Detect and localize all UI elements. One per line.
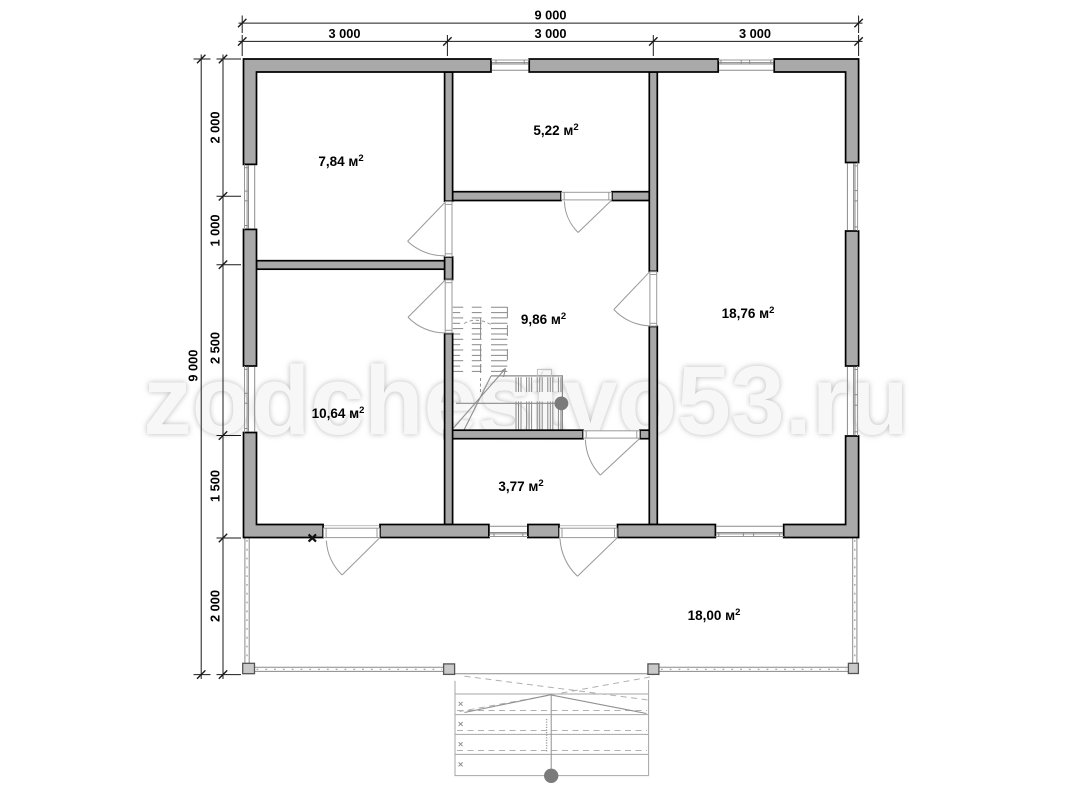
svg-text:5,22 м2: 5,22 м2 [533, 122, 578, 138]
svg-text:2 500: 2 500 [207, 332, 222, 364]
svg-text:9,86 м2: 9,86 м2 [521, 311, 566, 327]
svg-text:3 000: 3 000 [328, 26, 360, 41]
svg-text:3 000: 3 000 [739, 26, 771, 41]
svg-text:2 000: 2 000 [207, 590, 222, 622]
svg-text:2 000: 2 000 [207, 111, 222, 143]
svg-text:10,64 м2: 10,64 м2 [312, 405, 365, 421]
svg-text:9 000: 9 000 [186, 350, 201, 382]
svg-text:9 000: 9 000 [534, 8, 566, 23]
svg-text:3 000: 3 000 [534, 26, 566, 41]
svg-text:7,84 м2: 7,84 м2 [318, 153, 363, 169]
svg-text:1 000: 1 000 [207, 214, 222, 246]
svg-text:18,76 м2: 18,76 м2 [722, 305, 775, 321]
svg-text:3,77 м2: 3,77 м2 [498, 478, 543, 494]
svg-text:18,00 м2: 18,00 м2 [688, 607, 741, 623]
svg-text:1 500: 1 500 [207, 470, 222, 502]
